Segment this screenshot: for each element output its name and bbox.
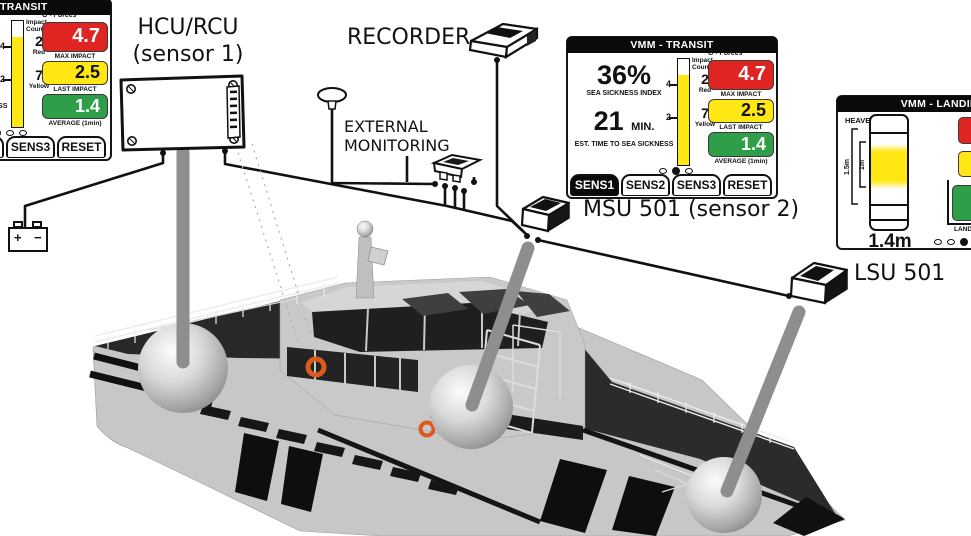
hcu-label-line1: HCU/RCU <box>118 14 258 41</box>
sensor-tab-bar: SENS1 SENS2 SENS3 RESET <box>0 136 106 158</box>
cable-hcu-to-msu <box>225 151 526 234</box>
sea-sickness-block: 36% SEA SICKNESS INDEX 21 MIN. EST. TIME… <box>574 60 674 149</box>
pole-lsu <box>727 312 799 491</box>
hidden-cables <box>236 144 312 342</box>
tab-sens2[interactable]: SENS2 <box>0 136 4 158</box>
vmm-transit-panel-left: VMM - TRANSIT 36% SEA SICKNESS INDEX 21 … <box>0 0 112 161</box>
page-dot <box>947 239 955 245</box>
page-dot-active <box>960 238 968 246</box>
hcu-label: HCU/RCU (sensor 1) <box>118 14 258 68</box>
gauge-tickmark-2 <box>669 117 678 119</box>
landing-red-box <box>958 117 971 144</box>
heave-gauge-line <box>871 204 907 206</box>
external-monitoring-label: EXTERNAL MONITORING <box>344 117 450 155</box>
diagram-canvas: HCU/RCU (sensor 1) RECORDER EXTERNAL MON… <box>0 0 971 536</box>
cable-msu-to-lsu <box>538 240 789 296</box>
tab-sens3[interactable]: SENS3 <box>672 174 721 196</box>
max-impact-value: 4.7 <box>708 60 774 90</box>
recorder-label: RECORDER <box>347 25 470 50</box>
landing-yellow-box <box>958 151 971 177</box>
tab-reset[interactable]: RESET <box>57 136 106 158</box>
battery-symbol: + − <box>8 227 48 252</box>
ship-illustration <box>0 0 971 536</box>
heave-gauge-band <box>871 144 907 189</box>
tab-sens3[interactable]: SENS3 <box>6 136 55 158</box>
average-impact-label: AVERAGE (1min) <box>708 158 774 165</box>
gauge-tickmark-2 <box>3 79 12 81</box>
sea-sickness-block: 36% SEA SICKNESS INDEX 21 MIN. EST. TIME… <box>0 22 8 111</box>
hcu-unit <box>121 76 244 153</box>
last-impact-value: 2.5 <box>42 61 108 85</box>
tab-reset[interactable]: RESET <box>723 174 772 196</box>
hub-stubs <box>445 177 474 210</box>
sea-sickness-index-label: SEA SICKNESS INDEX <box>574 90 674 98</box>
est-time-unit: MIN. <box>631 121 654 133</box>
aft-deck <box>95 287 560 360</box>
stairs <box>479 325 560 433</box>
est-time-number: 21 <box>594 106 624 136</box>
vmm-landing-panel: VMM - LANDING HEAVE 1.5m 1m 1.4m LANDING <box>836 95 971 250</box>
range-inner-label: 1m <box>859 160 866 170</box>
impact-gauge-fill <box>12 37 23 127</box>
cable-battery-to-hcu <box>25 154 163 227</box>
average-impact-label: AVERAGE (1min) <box>42 120 108 127</box>
average-impact-value: 1.4 <box>42 94 108 119</box>
battery-terminal-negative <box>32 221 42 228</box>
hcu-label-line2: (sensor 1) <box>118 41 258 68</box>
mast <box>356 221 388 298</box>
panel-title: VMM - TRANSIT <box>567 37 777 53</box>
range-outer-label: 1.5m <box>844 159 851 175</box>
fore-deck <box>583 347 845 536</box>
sea-sickness-index-label: SEA SICKNESS INDEX <box>0 52 8 60</box>
impact-gauge <box>11 20 24 128</box>
impact-gauge-fill <box>678 75 689 165</box>
tab-sens2[interactable]: SENS2 <box>621 174 670 196</box>
sensor-spheres <box>138 323 762 533</box>
wiring-diagram <box>0 0 971 536</box>
heave-value: 1.4m <box>848 231 932 253</box>
heave-range-brackets: 1.5m 1m <box>840 112 870 237</box>
max-impact-value: 4.7 <box>42 22 108 52</box>
heave-gauge-line <box>871 219 907 221</box>
page-indicator <box>934 238 968 246</box>
battery-minus-sign: − <box>34 230 42 245</box>
pole-sensor2 <box>472 248 528 405</box>
gauge-tickmark-4 <box>669 84 678 86</box>
heave-gauge-line <box>871 132 907 134</box>
life-rings <box>205 353 434 436</box>
gauge-tickmark-4 <box>3 46 12 48</box>
panel-title: VMM - LANDING <box>837 96 971 112</box>
cable-recorder-to-msu <box>497 60 523 231</box>
average-impact-value: 1.4 <box>708 132 774 157</box>
est-time-label: EST. TIME TO SEA SICKNESS <box>574 141 674 149</box>
landing-green-box <box>952 185 971 221</box>
hull-markings <box>90 356 675 536</box>
impact-gauge <box>677 58 690 166</box>
gps-antenna <box>318 88 346 109</box>
msu-unit <box>522 197 569 231</box>
landing-axis-vertical <box>947 180 949 225</box>
vmm-transit-panel-center: VMM - TRANSIT 36% SEA SICKNESS INDEX 21 … <box>566 36 778 199</box>
external-label-line2: MONITORING <box>344 136 450 155</box>
heave-gauge <box>869 114 909 231</box>
page-dot <box>934 239 942 245</box>
est-time-label: EST. TIME TO SEA SICKNESS <box>0 103 8 111</box>
landing-label: LANDING <box>954 226 971 233</box>
lsu-unit <box>791 263 847 303</box>
last-impact-label: LAST IMPACT <box>42 86 108 93</box>
sensor-tab-bar: SENS1 SENS2 SENS3 RESET <box>570 174 772 196</box>
battery-plus-sign: + <box>14 230 22 245</box>
hull <box>93 285 845 536</box>
last-impact-value: 2.5 <box>708 99 774 123</box>
heave-label: HEAVE <box>845 116 870 125</box>
g-forces-label: G - Forces <box>708 50 743 57</box>
recorder-unit <box>470 24 537 57</box>
last-impact-label: LAST IMPACT <box>708 124 774 131</box>
battery-terminal-positive <box>13 221 23 228</box>
landing-axis-horizontal <box>947 223 971 225</box>
railings <box>95 277 794 492</box>
lsu-label: LSU 501 <box>854 261 945 286</box>
g-forces-label: G - Forces <box>42 12 77 19</box>
external-label-line1: EXTERNAL <box>344 117 450 136</box>
monitoring-hub-unit <box>434 155 480 182</box>
tab-sens1[interactable]: SENS1 <box>570 174 619 196</box>
max-impact-label: MAX IMPACT <box>42 53 108 60</box>
msu-label: MSU 501 (sensor 2) <box>583 197 799 222</box>
superstructure <box>280 277 585 440</box>
max-impact-label: MAX IMPACT <box>708 91 774 98</box>
